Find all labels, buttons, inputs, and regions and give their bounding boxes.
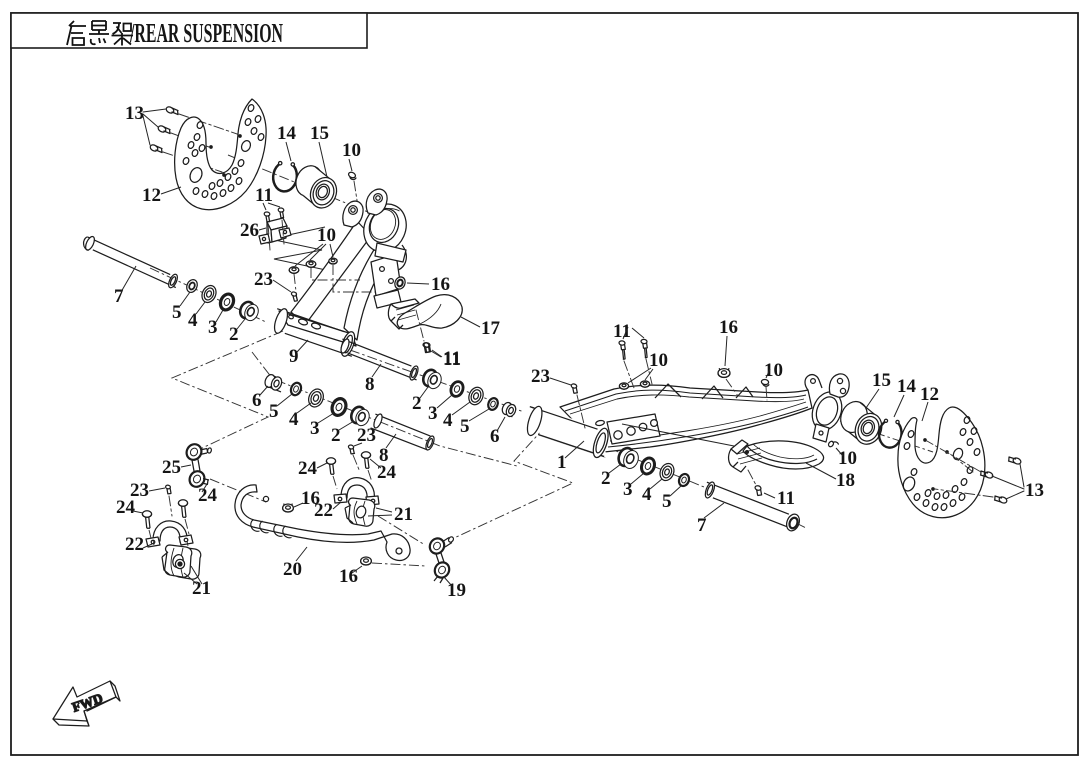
svg-text:11: 11	[443, 349, 461, 370]
svg-text:16: 16	[339, 566, 358, 587]
svg-text:12: 12	[142, 185, 161, 206]
svg-text:16: 16	[719, 317, 738, 338]
svg-text:12: 12	[920, 384, 939, 405]
svg-text:8: 8	[365, 374, 375, 395]
svg-text:/REAR SUSPENSION: /REAR SUSPENSION	[129, 18, 283, 48]
svg-text:13: 13	[1025, 480, 1044, 501]
svg-text:25: 25	[162, 457, 181, 478]
svg-text:23: 23	[254, 269, 273, 290]
svg-text:4: 4	[642, 484, 652, 505]
svg-text:23: 23	[531, 366, 550, 387]
svg-text:10: 10	[649, 350, 668, 371]
svg-text:2: 2	[601, 468, 611, 489]
svg-text:10: 10	[317, 225, 336, 246]
svg-text:24: 24	[298, 458, 318, 479]
svg-text:16: 16	[431, 274, 450, 295]
svg-text:11: 11	[613, 321, 631, 342]
svg-text:10: 10	[342, 140, 361, 161]
svg-text:3: 3	[428, 403, 438, 424]
svg-text:4: 4	[443, 410, 453, 431]
svg-text:26: 26	[240, 220, 259, 241]
svg-text:1: 1	[557, 452, 567, 473]
svg-text:3: 3	[208, 317, 218, 338]
svg-text:10: 10	[838, 448, 857, 469]
svg-text:2: 2	[229, 324, 239, 345]
svg-text:5: 5	[269, 401, 279, 422]
svg-text:23: 23	[357, 425, 376, 446]
svg-text:24: 24	[116, 497, 136, 518]
svg-text:2: 2	[412, 393, 422, 414]
svg-text:10: 10	[764, 360, 783, 381]
svg-text:14: 14	[897, 376, 917, 397]
svg-text:11: 11	[255, 185, 273, 206]
svg-text:15: 15	[310, 123, 329, 144]
svg-text:3: 3	[623, 479, 633, 500]
svg-text:18: 18	[836, 470, 855, 491]
svg-text:21: 21	[394, 504, 413, 525]
svg-text:24: 24	[377, 462, 397, 483]
svg-text:15: 15	[872, 370, 891, 391]
svg-text:11: 11	[777, 488, 795, 509]
svg-text:9: 9	[289, 346, 299, 367]
svg-text:2: 2	[331, 425, 341, 446]
svg-text:17: 17	[481, 318, 501, 339]
svg-text:6: 6	[252, 390, 262, 411]
svg-text:7: 7	[697, 515, 707, 536]
svg-text:24: 24	[198, 485, 218, 506]
svg-text:14: 14	[277, 123, 297, 144]
svg-text:20: 20	[283, 559, 302, 580]
svg-text:3: 3	[310, 418, 320, 439]
svg-text:5: 5	[460, 416, 470, 437]
svg-text:5: 5	[662, 491, 672, 512]
svg-text:21: 21	[192, 578, 211, 599]
svg-text:16: 16	[301, 488, 320, 509]
svg-text:22: 22	[125, 534, 144, 555]
svg-text:13: 13	[125, 103, 144, 124]
